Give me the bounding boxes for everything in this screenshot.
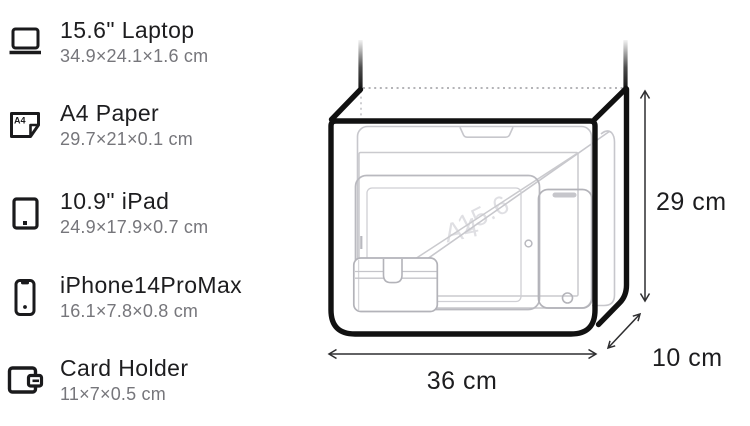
bag-diagram: 15.6 A4 [0, 0, 750, 426]
a4-watermark: A4 [442, 212, 483, 249]
strap-left [358, 40, 362, 90]
width-dimension-arrow [329, 350, 596, 359]
iphone-island [553, 193, 577, 198]
depth-dimension-arrow [608, 314, 640, 348]
bag-dimension-infographic: 15.6" Laptop 34.9×24.1×1.6 cm A4 A4 Pape… [0, 0, 750, 426]
bag-back-right-edge [599, 89, 627, 325]
ipad-camera-dot [525, 240, 532, 247]
width-label: 36 cm [427, 367, 498, 395]
height-label: 29 cm [656, 188, 727, 216]
depth-label: 10 cm [652, 344, 723, 372]
bag-item-iphone [539, 190, 593, 309]
iphone-camera-circle [563, 293, 573, 303]
bag-item-card-holder [354, 258, 438, 312]
height-dimension-arrow [641, 91, 650, 301]
bag-top-right-edge [595, 89, 627, 120]
bag-top-left-edge [332, 90, 361, 120]
card-holder-tab [384, 259, 403, 283]
strap-right [623, 40, 627, 90]
